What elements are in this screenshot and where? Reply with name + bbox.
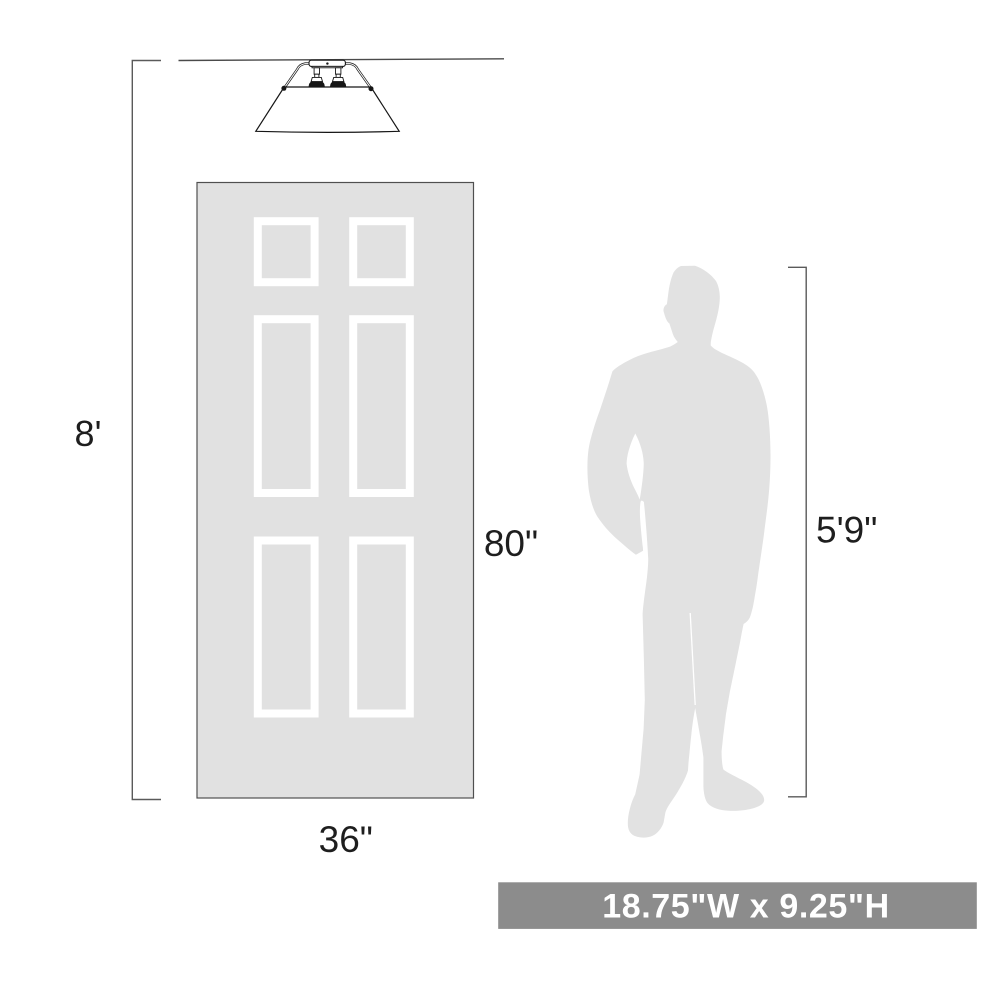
svg-text:18.75"W x 9.25"H: 18.75"W x 9.25"H bbox=[602, 888, 890, 926]
svg-text:8': 8' bbox=[75, 413, 102, 454]
svg-text:5'9": 5'9" bbox=[816, 510, 877, 551]
svg-text:80": 80" bbox=[484, 523, 538, 564]
svg-text:36": 36" bbox=[319, 819, 373, 860]
